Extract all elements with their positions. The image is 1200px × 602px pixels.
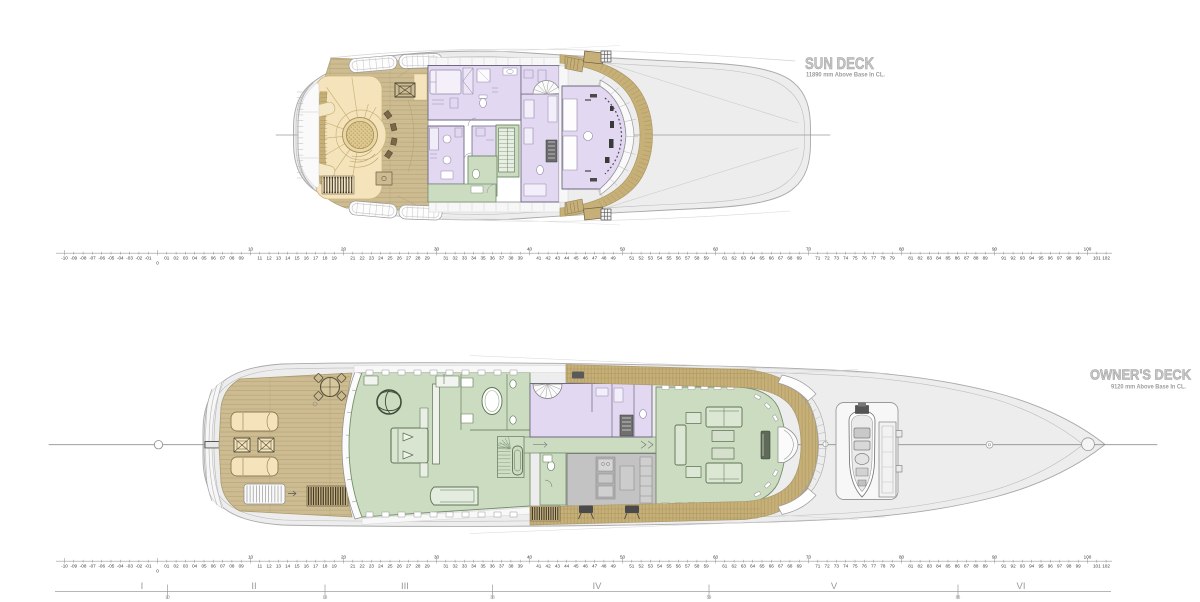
svg-text:53: 53 <box>648 256 654 261</box>
svg-text:28: 28 <box>415 564 421 569</box>
svg-text:56: 56 <box>676 256 682 261</box>
svg-text:66: 66 <box>769 564 775 569</box>
svg-text:93: 93 <box>1020 256 1026 261</box>
svg-text:26: 26 <box>397 256 403 261</box>
svg-text:92: 92 <box>1011 564 1017 569</box>
svg-text:-07: -07 <box>89 256 96 261</box>
svg-text:32: 32 <box>453 564 459 569</box>
svg-text:13: 13 <box>276 564 282 569</box>
svg-text:42: 42 <box>546 564 552 569</box>
svg-text:64: 64 <box>750 256 756 261</box>
svg-text:55: 55 <box>666 256 672 261</box>
svg-text:60: 60 <box>713 246 719 251</box>
svg-text:50: 50 <box>620 246 626 251</box>
svg-text:-03: -03 <box>126 256 133 261</box>
svg-text:10: 10 <box>248 554 254 559</box>
svg-text:35: 35 <box>480 564 486 569</box>
svg-text:17: 17 <box>313 564 319 569</box>
svg-text:38: 38 <box>508 564 514 569</box>
svg-text:76: 76 <box>862 564 868 569</box>
svg-text:01: 01 <box>164 256 170 261</box>
svg-text:22: 22 <box>360 256 366 261</box>
svg-text:15: 15 <box>294 256 300 261</box>
svg-text:87: 87 <box>964 564 970 569</box>
svg-text:-04: -04 <box>117 564 124 569</box>
svg-text:79: 79 <box>890 564 896 569</box>
svg-text:03: 03 <box>183 256 189 261</box>
svg-text:86: 86 <box>956 595 961 600</box>
svg-text:63: 63 <box>741 564 747 569</box>
svg-text:59: 59 <box>704 256 710 261</box>
svg-text:VI: VI <box>1017 581 1026 592</box>
svg-text:-04: -04 <box>117 256 124 261</box>
svg-text:31: 31 <box>443 256 449 261</box>
svg-text:72: 72 <box>825 256 831 261</box>
svg-text:-08: -08 <box>80 564 87 569</box>
svg-text:10: 10 <box>165 595 170 600</box>
svg-text:04: 04 <box>192 564 198 569</box>
svg-text:45: 45 <box>573 256 579 261</box>
svg-text:23: 23 <box>369 564 375 569</box>
svg-text:36: 36 <box>490 564 496 569</box>
svg-text:32: 32 <box>453 256 459 261</box>
svg-text:14: 14 <box>285 564 291 569</box>
svg-text:48: 48 <box>601 564 607 569</box>
svg-text:20: 20 <box>341 554 347 559</box>
svg-text:94: 94 <box>1029 256 1035 261</box>
svg-text:17: 17 <box>313 256 319 261</box>
svg-text:59: 59 <box>707 595 712 600</box>
svg-text:20: 20 <box>341 246 347 251</box>
svg-text:75: 75 <box>852 564 858 569</box>
svg-text:89: 89 <box>983 256 989 261</box>
svg-text:25: 25 <box>387 256 393 261</box>
svg-text:76: 76 <box>862 256 868 261</box>
svg-text:-03: -03 <box>126 564 133 569</box>
svg-text:29: 29 <box>425 256 431 261</box>
svg-text:90: 90 <box>992 554 998 559</box>
svg-text:86: 86 <box>955 564 961 569</box>
svg-text:49: 49 <box>611 256 617 261</box>
svg-text:-05: -05 <box>108 564 115 569</box>
svg-text:-02: -02 <box>136 564 143 569</box>
svg-text:06: 06 <box>211 564 217 569</box>
svg-text:12: 12 <box>267 256 273 261</box>
svg-text:9120 mm Above Base In CL.: 9120 mm Above Base In CL. <box>1111 383 1186 390</box>
svg-text:60: 60 <box>713 554 719 559</box>
svg-text:36: 36 <box>490 595 495 600</box>
svg-text:29: 29 <box>425 564 431 569</box>
svg-text:96: 96 <box>1048 564 1054 569</box>
svg-text:85: 85 <box>945 256 951 261</box>
svg-text:66: 66 <box>769 256 775 261</box>
svg-text:86: 86 <box>955 256 961 261</box>
svg-text:90: 90 <box>992 246 998 251</box>
svg-text:53: 53 <box>648 564 654 569</box>
svg-text:-06: -06 <box>98 256 105 261</box>
svg-text:74: 74 <box>843 564 849 569</box>
svg-text:04: 04 <box>192 256 198 261</box>
svg-text:40: 40 <box>527 246 533 251</box>
svg-text:-07: -07 <box>89 564 96 569</box>
svg-text:46: 46 <box>583 256 589 261</box>
svg-text:73: 73 <box>834 256 840 261</box>
svg-text:19: 19 <box>332 256 338 261</box>
svg-text:61: 61 <box>722 256 728 261</box>
svg-text:51: 51 <box>629 564 635 569</box>
svg-text:16: 16 <box>304 564 310 569</box>
svg-text:61: 61 <box>722 564 728 569</box>
svg-text:27: 27 <box>406 256 412 261</box>
svg-text:44: 44 <box>564 564 570 569</box>
svg-text:V: V <box>831 581 838 592</box>
svg-text:05: 05 <box>201 564 207 569</box>
svg-text:82: 82 <box>918 256 924 261</box>
svg-text:06: 06 <box>211 256 217 261</box>
svg-text:83: 83 <box>927 564 933 569</box>
svg-text:-10: -10 <box>61 256 68 261</box>
svg-text:37: 37 <box>499 256 505 261</box>
svg-text:33: 33 <box>462 256 468 261</box>
svg-text:99: 99 <box>1076 256 1082 261</box>
svg-text:36: 36 <box>490 256 496 261</box>
svg-text:98: 98 <box>1066 256 1072 261</box>
svg-text:30: 30 <box>434 554 440 559</box>
svg-text:II: II <box>251 581 256 592</box>
svg-text:81: 81 <box>908 564 914 569</box>
svg-text:46: 46 <box>583 564 589 569</box>
svg-text:72: 72 <box>825 564 831 569</box>
svg-text:05: 05 <box>201 256 207 261</box>
svg-text:01: 01 <box>164 564 170 569</box>
svg-text:67: 67 <box>778 256 784 261</box>
svg-text:102: 102 <box>1102 564 1110 569</box>
svg-text:62: 62 <box>732 564 738 569</box>
svg-text:71: 71 <box>815 564 821 569</box>
svg-text:SUN DECK: SUN DECK <box>805 54 875 73</box>
svg-text:97: 97 <box>1057 564 1063 569</box>
svg-text:85: 85 <box>945 564 951 569</box>
svg-text:42: 42 <box>546 256 552 261</box>
svg-text:39: 39 <box>518 564 524 569</box>
svg-text:82: 82 <box>918 564 924 569</box>
svg-text:58: 58 <box>694 256 700 261</box>
svg-text:13: 13 <box>276 256 282 261</box>
svg-text:18: 18 <box>322 256 328 261</box>
svg-text:09: 09 <box>239 564 245 569</box>
svg-text:83: 83 <box>927 256 933 261</box>
svg-text:69: 69 <box>797 564 803 569</box>
svg-text:43: 43 <box>555 256 561 261</box>
svg-text:74: 74 <box>843 256 849 261</box>
svg-text:08: 08 <box>229 564 235 569</box>
svg-text:-05: -05 <box>108 256 115 261</box>
svg-text:95: 95 <box>1038 256 1044 261</box>
svg-text:77: 77 <box>871 564 877 569</box>
svg-text:OWNER'S DECK: OWNER'S DECK <box>1090 367 1191 384</box>
svg-text:94: 94 <box>1029 564 1035 569</box>
svg-text:-02: -02 <box>136 256 143 261</box>
svg-text:97: 97 <box>1057 256 1063 261</box>
svg-text:100: 100 <box>1084 554 1092 559</box>
svg-text:41: 41 <box>536 256 542 261</box>
svg-text:III: III <box>401 581 409 592</box>
svg-text:49: 49 <box>611 564 617 569</box>
svg-text:25: 25 <box>387 564 393 569</box>
svg-text:80: 80 <box>899 554 905 559</box>
svg-text:43: 43 <box>555 564 561 569</box>
svg-text:87: 87 <box>964 256 970 261</box>
svg-text:19: 19 <box>323 595 328 600</box>
svg-text:95: 95 <box>1038 564 1044 569</box>
svg-text:54: 54 <box>657 564 663 569</box>
svg-text:77: 77 <box>871 256 877 261</box>
svg-text:93: 93 <box>1020 564 1026 569</box>
svg-text:88: 88 <box>973 564 979 569</box>
svg-text:-01: -01 <box>145 564 152 569</box>
svg-text:03: 03 <box>183 564 189 569</box>
svg-text:52: 52 <box>639 564 645 569</box>
svg-text:19: 19 <box>332 564 338 569</box>
svg-text:37: 37 <box>499 564 505 569</box>
svg-text:11: 11 <box>257 564 262 569</box>
svg-text:89: 89 <box>983 564 989 569</box>
svg-text:51: 51 <box>629 256 635 261</box>
svg-text:84: 84 <box>936 564 942 569</box>
svg-text:47: 47 <box>592 256 598 261</box>
svg-text:98: 98 <box>1066 564 1072 569</box>
svg-text:0: 0 <box>156 569 159 574</box>
svg-text:63: 63 <box>741 256 747 261</box>
svg-text:27: 27 <box>406 564 412 569</box>
svg-text:-06: -06 <box>98 564 105 569</box>
svg-text:33: 33 <box>462 564 468 569</box>
svg-text:80: 80 <box>899 246 905 251</box>
svg-text:96: 96 <box>1048 256 1054 261</box>
svg-text:21: 21 <box>350 564 356 569</box>
svg-text:62: 62 <box>732 256 738 261</box>
svg-text:18: 18 <box>322 564 328 569</box>
svg-text:-09: -09 <box>70 256 77 261</box>
svg-text:07: 07 <box>220 564 226 569</box>
svg-text:15: 15 <box>294 564 300 569</box>
svg-text:31: 31 <box>443 564 449 569</box>
svg-text:11890 mm Above Base In CL.: 11890 mm Above Base In CL. <box>806 71 885 78</box>
svg-text:75: 75 <box>852 256 858 261</box>
svg-text:70: 70 <box>806 554 812 559</box>
svg-text:24: 24 <box>378 564 384 569</box>
svg-text:47: 47 <box>592 564 598 569</box>
svg-text:07: 07 <box>220 256 226 261</box>
svg-text:48: 48 <box>601 256 607 261</box>
svg-text:50: 50 <box>620 554 626 559</box>
svg-text:-01: -01 <box>145 256 152 261</box>
svg-text:09: 09 <box>239 256 245 261</box>
svg-text:-08: -08 <box>80 256 87 261</box>
svg-text:-10: -10 <box>61 564 68 569</box>
svg-text:23: 23 <box>369 256 375 261</box>
svg-text:78: 78 <box>880 564 886 569</box>
svg-text:79: 79 <box>890 256 896 261</box>
svg-text:41: 41 <box>536 564 542 569</box>
svg-text:84: 84 <box>936 256 942 261</box>
svg-text:34: 34 <box>471 256 477 261</box>
svg-text:08: 08 <box>229 256 235 261</box>
svg-text:02: 02 <box>174 564 180 569</box>
svg-text:68: 68 <box>787 256 793 261</box>
svg-text:14: 14 <box>285 256 291 261</box>
svg-text:39: 39 <box>518 256 524 261</box>
svg-text:101: 101 <box>1093 564 1101 569</box>
svg-text:0: 0 <box>156 261 159 266</box>
svg-text:44: 44 <box>564 256 570 261</box>
svg-text:88: 88 <box>973 256 979 261</box>
svg-text:35: 35 <box>480 256 486 261</box>
svg-text:58: 58 <box>694 564 700 569</box>
svg-text:21: 21 <box>350 256 356 261</box>
svg-text:100: 100 <box>1084 246 1092 251</box>
svg-text:02: 02 <box>174 256 180 261</box>
svg-text:16: 16 <box>304 256 310 261</box>
svg-text:26: 26 <box>397 564 403 569</box>
svg-text:54: 54 <box>657 256 663 261</box>
svg-text:12: 12 <box>267 564 273 569</box>
svg-text:64: 64 <box>750 564 756 569</box>
svg-text:55: 55 <box>666 564 672 569</box>
svg-text:71: 71 <box>815 256 821 261</box>
svg-text:28: 28 <box>415 256 421 261</box>
svg-text:70: 70 <box>806 246 812 251</box>
svg-text:65: 65 <box>759 256 765 261</box>
svg-text:10: 10 <box>248 246 254 251</box>
svg-text:38: 38 <box>508 256 514 261</box>
svg-text:99: 99 <box>1076 564 1082 569</box>
svg-text:40: 40 <box>527 554 533 559</box>
svg-text:-09: -09 <box>70 564 77 569</box>
svg-text:101: 101 <box>1093 256 1101 261</box>
svg-text:91: 91 <box>1001 564 1007 569</box>
svg-text:68: 68 <box>787 564 793 569</box>
svg-text:57: 57 <box>685 256 691 261</box>
svg-text:65: 65 <box>759 564 765 569</box>
svg-text:34: 34 <box>471 564 477 569</box>
svg-text:102: 102 <box>1102 256 1110 261</box>
svg-text:45: 45 <box>573 564 579 569</box>
svg-text:73: 73 <box>834 564 840 569</box>
svg-text:69: 69 <box>797 256 803 261</box>
svg-text:92: 92 <box>1011 256 1017 261</box>
svg-text:78: 78 <box>880 256 886 261</box>
svg-text:81: 81 <box>908 256 914 261</box>
svg-text:24: 24 <box>378 256 384 261</box>
svg-text:22: 22 <box>360 564 366 569</box>
svg-text:57: 57 <box>685 564 691 569</box>
svg-text:IV: IV <box>593 581 603 592</box>
svg-text:67: 67 <box>778 564 784 569</box>
svg-text:30: 30 <box>434 246 440 251</box>
svg-text:I: I <box>141 581 144 592</box>
svg-text:59: 59 <box>704 564 710 569</box>
svg-text:56: 56 <box>676 564 682 569</box>
svg-text:11: 11 <box>257 256 262 261</box>
svg-text:91: 91 <box>1001 256 1007 261</box>
svg-text:52: 52 <box>639 256 645 261</box>
